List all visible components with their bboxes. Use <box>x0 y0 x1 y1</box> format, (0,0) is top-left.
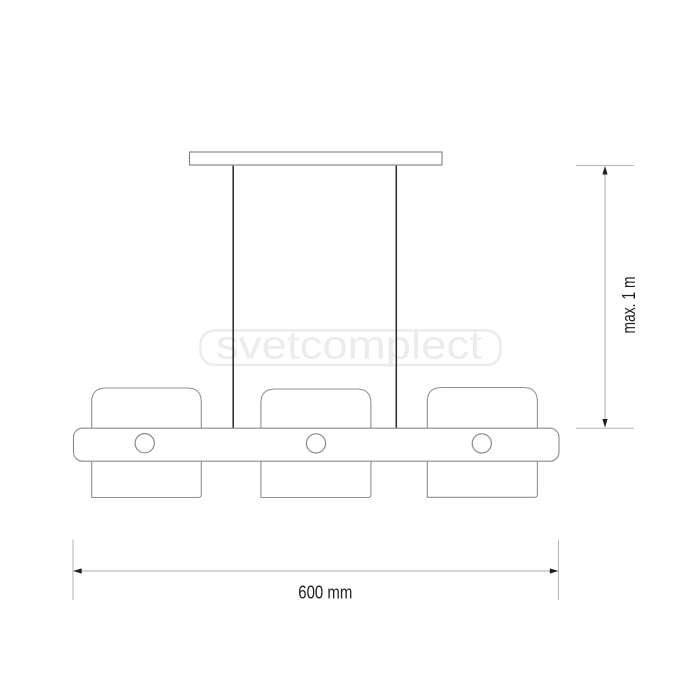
svg-text:600 mm: 600 mm <box>298 582 352 603</box>
svg-text:max. 1 m: max. 1 m <box>618 277 639 334</box>
svg-text:svetcomplect: svetcomplect <box>216 324 482 368</box>
